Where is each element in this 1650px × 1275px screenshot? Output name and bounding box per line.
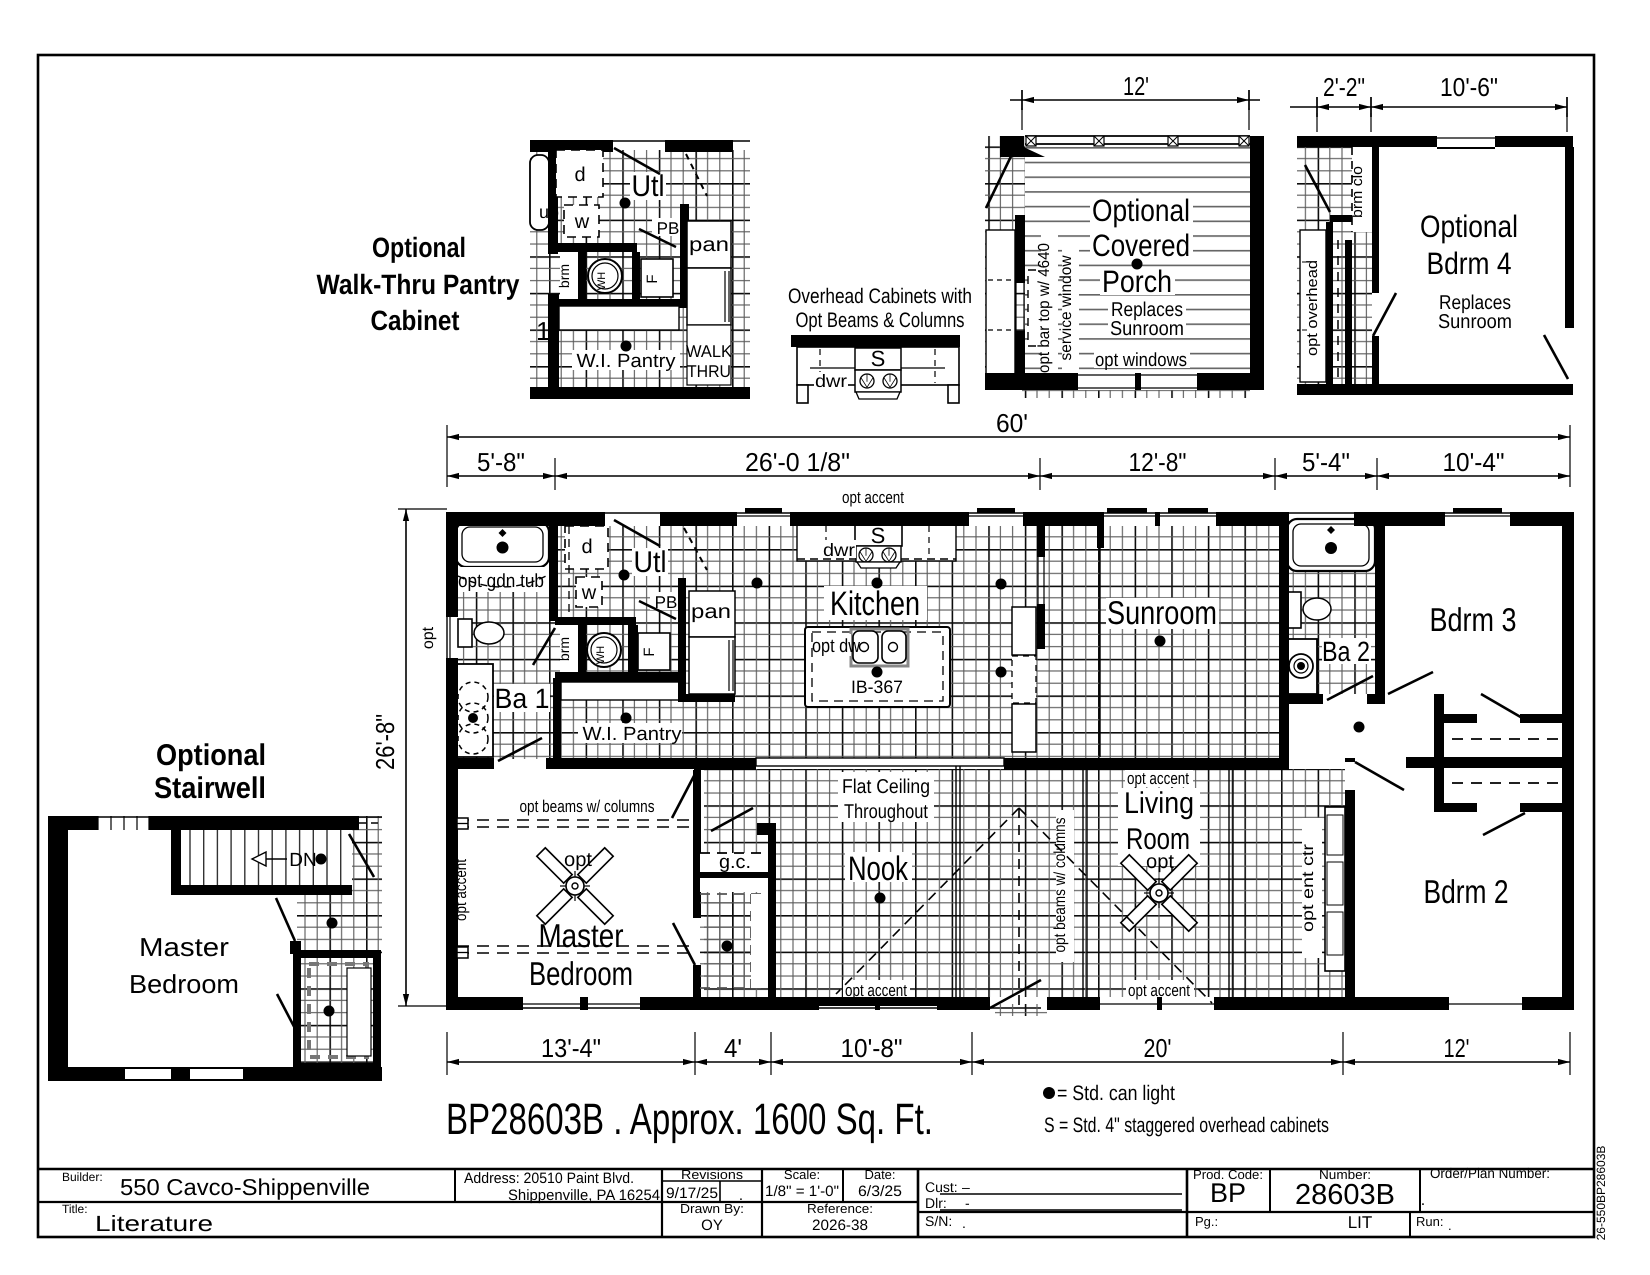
svg-text:26-550BP28603B: 26-550BP28603B: [1594, 1146, 1608, 1241]
svg-text:Revisions: Revisions: [681, 1167, 744, 1182]
svg-text:Utl: Utl: [632, 170, 665, 203]
svg-text:opt beams w/ columns: opt beams w/ columns: [1052, 818, 1069, 953]
svg-text:Optional: Optional: [1092, 193, 1190, 228]
svg-text:opt dw: opt dw: [812, 636, 860, 657]
svg-text:brm: brm: [556, 637, 572, 661]
svg-text:2026-38: 2026-38: [812, 1217, 868, 1234]
svg-text:Date:: Date:: [864, 1167, 895, 1182]
svg-text:Bedroom: Bedroom: [129, 969, 239, 999]
svg-text:Walk-Thru Pantry: Walk-Thru Pantry: [317, 269, 520, 300]
svg-text:THRU: THRU: [687, 362, 731, 381]
svg-text:9/17/25: 9/17/25: [666, 1185, 718, 1202]
svg-text:d: d: [581, 536, 592, 558]
svg-text:Stairwell: Stairwell: [154, 772, 266, 805]
svg-text:550 Cavco-Shippenville: 550 Cavco-Shippenville: [120, 1174, 370, 1200]
svg-text:opt: opt: [564, 849, 592, 871]
svg-text:dwr: dwr: [823, 540, 855, 560]
svg-text:Living: Living: [1124, 787, 1194, 820]
svg-text:10'-8": 10'-8": [841, 1033, 903, 1063]
svg-text:F: F: [641, 647, 658, 656]
svg-text:Address: 20510 Paint Blvd.: Address: 20510 Paint Blvd.: [464, 1170, 634, 1187]
svg-text:Sunroom: Sunroom: [1110, 318, 1184, 340]
svg-text:brm clo: brm clo: [1349, 166, 1366, 218]
svg-text:1/8" = 1'-0": 1/8" = 1'-0": [765, 1183, 839, 1200]
svg-text:5'-8": 5'-8": [477, 447, 525, 477]
svg-text:opt: opt: [420, 626, 437, 649]
svg-text:WH: WH: [596, 272, 608, 290]
svg-text:5'-4": 5'-4": [1302, 447, 1350, 477]
svg-text:10'-4": 10'-4": [1443, 447, 1505, 477]
svg-text:opt gdn tub: opt gdn tub: [458, 571, 544, 592]
svg-text:S: S: [871, 523, 886, 548]
svg-text:Drawn By:: Drawn By:: [680, 1201, 744, 1216]
svg-text:Bedroom: Bedroom: [529, 955, 633, 992]
svg-text:pan: pan: [691, 601, 731, 623]
svg-text:WH: WH: [595, 646, 607, 664]
svg-text:service window: service window: [1058, 255, 1075, 360]
svg-text:28603B: 28603B: [1295, 1179, 1395, 1211]
svg-text:Ba 1: Ba 1: [495, 683, 550, 714]
svg-text:12'-8": 12'-8": [1129, 447, 1187, 477]
svg-text:PB: PB: [657, 219, 680, 238]
svg-text:Overhead Cabinets with: Overhead Cabinets with: [788, 285, 972, 308]
svg-text:BP: BP: [1210, 1178, 1246, 1208]
svg-text:Builder:: Builder:: [62, 1170, 103, 1184]
svg-text:opt beams w/ columns: opt beams w/ columns: [520, 797, 655, 816]
svg-text:Flat Ceiling: Flat Ceiling: [842, 776, 930, 798]
svg-text:20': 20': [1144, 1033, 1172, 1063]
svg-text:Title:: Title:: [62, 1202, 88, 1216]
svg-text:13'-4": 13'-4": [541, 1033, 601, 1063]
svg-text:S = Std. 4" staggered overhead: S = Std. 4" staggered overhead cabinets: [1044, 1114, 1329, 1137]
svg-text:Reference:: Reference:: [807, 1201, 873, 1216]
svg-text:opt: opt: [1146, 851, 1174, 873]
svg-text:4': 4': [724, 1033, 742, 1063]
svg-text:Order/Plan Number:: Order/Plan Number:: [1430, 1165, 1550, 1181]
svg-text:OY: OY: [701, 1217, 723, 1234]
svg-text:.: .: [1421, 1192, 1425, 1209]
svg-text:Nook: Nook: [848, 850, 909, 888]
svg-text:S/N:: S/N:: [925, 1213, 952, 1229]
svg-text:brm: brm: [556, 264, 572, 288]
svg-text:opt windows: opt windows: [1095, 350, 1187, 371]
svg-text:IB-367: IB-367: [851, 677, 903, 697]
svg-text:Bdrm 2: Bdrm 2: [1424, 873, 1509, 910]
svg-text:opt bar top w/ 4640: opt bar top w/ 4640: [1036, 243, 1053, 373]
svg-text:= Std. can light: = Std. can light: [1057, 1082, 1175, 1105]
svg-text:opt accent: opt accent: [842, 488, 904, 507]
svg-text:w: w: [574, 211, 590, 233]
svg-text:.: .: [1448, 1218, 1452, 1233]
svg-text:–: –: [962, 1179, 970, 1195]
svg-text:Utl: Utl: [634, 546, 667, 579]
svg-text:LIT: LIT: [1348, 1213, 1373, 1232]
svg-text:w: w: [581, 582, 597, 604]
svg-text:10'-6": 10'-6": [1440, 72, 1498, 102]
svg-text:Shippenville, PA 16254: Shippenville, PA 16254: [508, 1187, 660, 1204]
svg-text:Pg.:: Pg.:: [1195, 1214, 1218, 1229]
svg-text:.: .: [962, 1215, 966, 1231]
svg-text:60': 60': [996, 408, 1028, 438]
svg-text:F: F: [644, 274, 661, 283]
svg-text:Cabinet: Cabinet: [371, 305, 460, 336]
svg-text:2'-2": 2'-2": [1323, 72, 1365, 102]
svg-text:Sunroom: Sunroom: [1107, 594, 1217, 631]
svg-text:S: S: [871, 346, 886, 371]
svg-text:opt ent ctr: opt ent ctr: [1300, 843, 1317, 932]
svg-text:Cust:: Cust:: [925, 1179, 958, 1195]
svg-text:Covered: Covered: [1092, 228, 1190, 263]
svg-text:Scale:: Scale:: [784, 1167, 820, 1182]
svg-text:Optional: Optional: [372, 232, 466, 263]
svg-text:12': 12': [1444, 1033, 1470, 1063]
svg-text:Master: Master: [139, 932, 229, 962]
svg-text:DN: DN: [289, 850, 316, 871]
svg-text:Optional: Optional: [1420, 209, 1518, 244]
svg-text:dwr: dwr: [815, 371, 847, 391]
svg-text:opt accent: opt accent: [1127, 769, 1189, 788]
svg-text:Opt Beams & Columns: Opt Beams & Columns: [796, 309, 965, 332]
svg-text:26'-8": 26'-8": [370, 714, 400, 770]
svg-text:12': 12': [1123, 71, 1149, 101]
svg-text:Dlr:: Dlr:: [925, 1195, 947, 1211]
svg-text:Literature: Literature: [95, 1211, 213, 1236]
svg-text:Run:: Run:: [1416, 1214, 1443, 1229]
svg-text:W.I. Pantry: W.I. Pantry: [577, 351, 677, 372]
svg-text:BP28603B . Approx. 1600 Sq. F: BP28603B . Approx. 1600 Sq. Ft.: [446, 1095, 933, 1144]
svg-text:Optional: Optional: [156, 739, 266, 772]
svg-text:g.c.: g.c.: [719, 852, 751, 873]
svg-text:Throughout: Throughout: [844, 801, 928, 823]
svg-text:Kitchen: Kitchen: [830, 585, 920, 623]
svg-text:Bdrm 3: Bdrm 3: [1430, 601, 1517, 638]
svg-text:opt overhead: opt overhead: [1304, 260, 1321, 356]
svg-text:pan: pan: [689, 234, 729, 256]
svg-text:-: -: [965, 1195, 970, 1211]
svg-text:Ba 2: Ba 2: [1322, 636, 1370, 667]
svg-text:6/3/25: 6/3/25: [858, 1183, 902, 1200]
svg-text:W.I. Pantry: W.I. Pantry: [583, 724, 683, 745]
svg-text:WALK: WALK: [686, 342, 733, 361]
svg-text:Sunroom: Sunroom: [1438, 311, 1512, 333]
svg-text:Bdrm 4: Bdrm 4: [1427, 246, 1512, 281]
svg-text:1: 1: [536, 316, 550, 346]
svg-text:d: d: [574, 164, 585, 186]
svg-text:Master: Master: [539, 917, 624, 954]
svg-text:26'-0 1/8": 26'-0 1/8": [745, 447, 850, 477]
